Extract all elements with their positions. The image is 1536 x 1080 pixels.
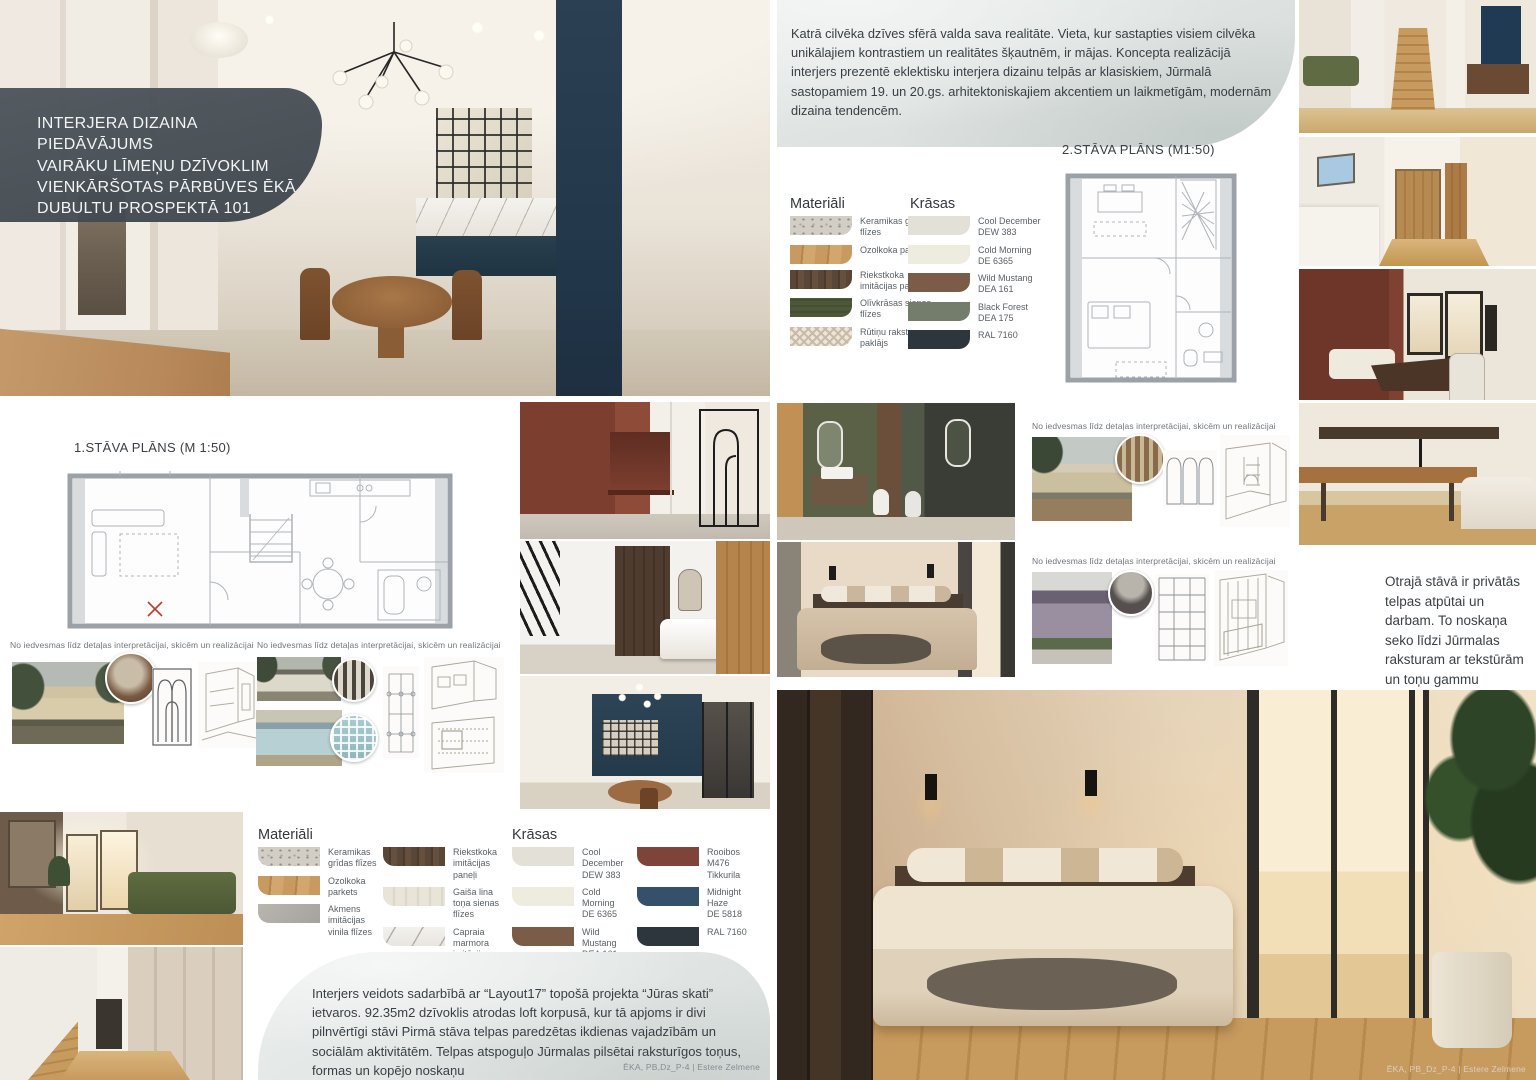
bathroom-niche-pencil-sketch [1220, 435, 1290, 527]
color-code: DE 6365 [978, 256, 1056, 267]
color-item: Cold MorningDE 6365 [908, 245, 1056, 268]
material-label: Gaiša lina toņa sienas flīzes [453, 887, 505, 921]
color-label: Black ForestDEA 175 [978, 302, 1056, 325]
color-label: RAL 7160 [978, 330, 1056, 341]
material-item: Akmens imitācijas vinila flīzes [258, 904, 380, 938]
color-label: Cold MorningDE 6365 [582, 887, 634, 921]
color-swatch [908, 216, 970, 235]
arch-study-drawing-1 [152, 668, 192, 746]
white-sofa [1461, 477, 1536, 529]
wood-floor [1299, 108, 1536, 133]
colors-legend-title-lower: Krāsas [512, 827, 557, 843]
first-floor-plan-drawing [60, 462, 460, 640]
material-swatch-ceramic-tile [790, 216, 852, 235]
outro-panel: Interjers veidots sadarbībā ar “Layout17… [258, 952, 770, 1080]
colors-legend-lower-col1: Cool DecemberDEW 383 Cold MorningDE 6365… [512, 847, 634, 966]
desk-leg [1321, 483, 1326, 521]
throw-blanket [927, 958, 1177, 1010]
hero-teal-accent-wall [556, 0, 622, 396]
radiator [1485, 305, 1497, 351]
hero-chair-right [452, 270, 482, 340]
color-item: Midnight HazeDE 5818 [637, 887, 759, 921]
small-bedroom-photo [777, 542, 1015, 677]
title-line: INTERJERA DIZAINA PIEDĀVĀJUMS [37, 113, 300, 156]
color-item: RooibosM476 Tikkurila [637, 847, 759, 881]
basin [821, 467, 853, 479]
oval-mirror-left [817, 421, 843, 469]
color-item: Black ForestDEA 175 [908, 302, 1056, 325]
fiddle-leaf-plant [1367, 690, 1536, 930]
arched-mirror [678, 569, 702, 611]
material-label: Akmens imitācijas vinila flīzes [328, 904, 380, 938]
red-hall-niche [610, 432, 670, 490]
master-bedroom-photo: ĒKA, PB_Dz_P-4 | Estere Zelmene [777, 690, 1536, 1080]
color-swatch [908, 302, 970, 321]
desk-leg [1449, 483, 1454, 521]
color-name: Wild Mustang [582, 927, 634, 950]
wardrobe-seam [670, 402, 672, 514]
wall-shelf [1319, 427, 1499, 439]
color-swatch [637, 927, 699, 946]
color-code: M476 Tikkurila [707, 858, 759, 881]
green-sofa [128, 872, 236, 914]
wall-sconce-left [829, 566, 836, 580]
material-swatch-check-carpet [790, 327, 852, 346]
inspiration-house-photo-2 [257, 657, 341, 701]
second-floor-note: Otrajā stāvā ir privātās telpas atpūtai … [1385, 572, 1535, 689]
title-line: VIENKĀRŠOTAS PĀRBŪVES ĒKĀ [37, 177, 300, 198]
dark-wardrobe [777, 690, 873, 1080]
dining-chair [640, 788, 658, 809]
color-label: Midnight HazeDE 5818 [707, 887, 759, 921]
material-item: Keramikas grīdas flīzes [258, 847, 380, 870]
inspiration-detail-circle-4 [1115, 434, 1165, 484]
color-code: DE 5818 [707, 909, 759, 920]
color-label: Cool DecemberDEW 383 [978, 216, 1056, 239]
credit-right: ĒKA, PB_Dz_P-4 | Estere Zelmene [1387, 1064, 1526, 1074]
pillows [907, 848, 1183, 882]
color-code: DEA 161 [978, 284, 1056, 295]
color-label: RooibosM476 Tikkurila [707, 847, 759, 881]
upstairs-hall-door-photo [1299, 137, 1536, 266]
material-swatch-linen-tiles [383, 887, 445, 906]
color-item: RAL 7160 [637, 927, 759, 946]
color-label: Cool DecemberDEW 383 [582, 847, 634, 881]
color-name: Midnight Haze [707, 887, 759, 910]
color-item: RAL 7160 [908, 330, 1056, 349]
color-swatch [512, 927, 574, 946]
color-code: DEW 383 [582, 870, 634, 881]
color-swatch [908, 245, 970, 264]
arched-glass-partition [696, 408, 766, 528]
wood-floor [60, 1051, 190, 1080]
color-swatch [908, 330, 970, 349]
green-bathroom-photo [777, 403, 1015, 540]
materials-legend-title-lower: Materiāli [258, 827, 313, 843]
wood-desk-chairs [1467, 64, 1529, 94]
color-swatch [637, 887, 699, 906]
color-swatch [512, 887, 574, 906]
material-label: Riekstkoka imitācijas paneļi [453, 847, 505, 881]
title-line: DUBULTU PROSPEKTĀ 101 [37, 198, 300, 219]
hero-chandelier [318, 22, 468, 122]
black-glass-doors [702, 702, 754, 798]
wall-sconce-right [927, 564, 934, 578]
desk-lamp [1419, 439, 1422, 467]
toilet [873, 489, 889, 515]
oval-mirror-right [945, 419, 971, 467]
color-name: Wild Mustang [978, 273, 1056, 284]
navy-accent-wall [1481, 6, 1521, 72]
sketch-caption: No iedvesmas līdz detaļas interpretācija… [257, 640, 501, 650]
interior-pencil-sketch-1 [198, 662, 260, 748]
material-swatch-walnut-panels [790, 270, 852, 289]
material-swatch-stone-vinyl [258, 904, 320, 923]
color-name: RAL 7160 [707, 927, 759, 938]
checkered-glass-window [602, 720, 658, 756]
window-left [1407, 293, 1443, 355]
credit-left: ĒKA, PB,Dz_P-4 | Estere Zelmene [623, 1062, 760, 1072]
color-swatch [908, 273, 970, 292]
potted-plant [48, 856, 70, 886]
title-card: INTERJERA DIZAINA PIEDĀVĀJUMS VAIRĀKU LĪ… [0, 88, 322, 222]
inspiration-building-photo-2 [1032, 572, 1112, 664]
wardrobe-pencil-sketch [1214, 570, 1288, 666]
living-room-green-sofa-photo [0, 812, 243, 945]
color-item: Cool DecemberDEW 383 [908, 216, 1056, 239]
title-line: VAIRĀKU LĪMEŅU DZĪVOKLIM [37, 156, 300, 177]
color-label: RAL 7160 [707, 927, 759, 938]
toilet-reflection [905, 491, 921, 517]
color-code: DEW 383 [978, 227, 1056, 238]
triple-arch-drawing [1163, 450, 1217, 506]
materials-legend-lower-col1: Keramikas grīdas flīzes Ozolkoka parkets… [258, 847, 380, 944]
sketch-caption: No iedvesmas līdz detaļas interpretācija… [1032, 421, 1276, 431]
color-name: Black Forest [978, 302, 1056, 313]
second-floor-plan-drawing [1058, 162, 1244, 394]
material-label: Ozolkoka parkets [328, 876, 380, 899]
terrazzo-floor [777, 517, 1015, 540]
color-name: Rooibos [707, 847, 759, 858]
second-floor-plan-label: 2.STĀVA PLĀNS (M1:50) [1062, 142, 1215, 157]
hero-round-table [332, 276, 452, 328]
color-label: Wild MustangDEA 161 [978, 273, 1056, 296]
red-entry-hall-photo [520, 402, 770, 539]
colors-legend-lower-col2: RooibosM476 Tikkurila Midnight HazeDE 58… [637, 847, 759, 952]
material-swatch-ceramic-tile [258, 847, 320, 866]
color-swatch [637, 847, 699, 866]
color-label: Cold MorningDE 6365 [978, 245, 1056, 268]
stair-parapet [1299, 207, 1379, 266]
material-swatch-marble-ceramic [383, 927, 445, 946]
color-name: Cool December [582, 847, 634, 870]
office-chair [1449, 353, 1485, 400]
hero-round-ceiling-lamp [190, 22, 248, 58]
hero-navy-cabinets [416, 236, 556, 276]
color-item: Cold MorningDE 6365 [512, 887, 634, 921]
color-item: Wild MustangDEA 161 [908, 273, 1056, 296]
study-desk-photo [1299, 403, 1536, 545]
color-item: Cool DecemberDEW 383 [512, 847, 634, 881]
pillows [821, 586, 951, 602]
red-hall-shelf [608, 490, 674, 495]
color-name: Cool December [978, 216, 1056, 227]
color-code: DEA 175 [978, 313, 1056, 324]
red-office-photo [1299, 269, 1536, 400]
stair-railing [520, 541, 560, 636]
wooden-door [1395, 169, 1441, 243]
inspiration-detail-circle-5 [1108, 570, 1154, 616]
color-name: RAL 7160 [978, 330, 1056, 341]
material-item: Ozolkoka parkets [258, 876, 380, 899]
staircase-living-photo [1299, 0, 1536, 133]
inspiration-detail-circle-2 [332, 658, 376, 702]
green-sofa [1303, 56, 1359, 86]
presentation-board: INTERJERA DIZAINA PIEDĀVĀJUMS VAIRĀKU LĪ… [0, 0, 1536, 1080]
throw-blanket [821, 634, 931, 664]
window-right [1445, 291, 1483, 359]
color-name: Cold Morning [582, 887, 634, 910]
wooden-door-side [1445, 163, 1467, 245]
niche-light-left [925, 774, 937, 800]
colors-legend-title-upper: Krāsas [910, 196, 955, 212]
terrace-door [66, 834, 98, 912]
dark-doorway [96, 999, 122, 1049]
plant-pot [1432, 952, 1512, 1048]
hero-chair-left [300, 268, 330, 340]
material-swatch-walnut-panels [383, 847, 445, 866]
wood-floor [0, 914, 243, 945]
materials-legend-title-upper: Materiāli [790, 196, 845, 212]
niche-light-right [1085, 770, 1097, 796]
inspiration-detail-circle-1 [105, 652, 157, 704]
material-swatch-olive-tiles [790, 298, 852, 317]
color-code: DE 6365 [582, 909, 634, 920]
vanity-cabinet [811, 475, 867, 505]
wood-staircase [1391, 28, 1435, 110]
wood-desk [1299, 467, 1477, 483]
material-swatch-oak-parquet [790, 245, 852, 264]
intro-panel: Katrā cilvēka dzīves sfērā valda sava re… [777, 0, 1295, 147]
window-grid-study-drawing [383, 666, 419, 758]
small-window [1317, 153, 1355, 187]
square-grid-study-drawing [1155, 574, 1209, 662]
hallway-wardrobe-photo [0, 947, 243, 1080]
material-item: Gaiša lina toņa sienas flīzes [383, 887, 505, 921]
oak-door [716, 541, 770, 674]
sputnik-chandelier [616, 682, 668, 708]
first-floor-plan-label: 1.STĀVA PLĀNS (M 1:50) [74, 440, 231, 455]
material-item: Riekstkoka imitācijas paneļi [383, 847, 505, 881]
intro-paragraph: Katrā cilvēka dzīves sfērā valda sava re… [791, 24, 1273, 120]
sketch-caption: No iedvesmas līdz detaļas interpretācija… [1032, 556, 1276, 566]
bathroom-photo-1 [520, 541, 770, 674]
color-swatch [512, 847, 574, 866]
material-swatch-oak-parquet [258, 876, 320, 895]
color-name: Cold Morning [978, 245, 1056, 256]
hero-marble-backsplash [416, 198, 556, 236]
kitchen-pencil-sketch [424, 657, 504, 773]
dining-nook-photo [520, 676, 770, 809]
sketch-caption: No iedvesmas līdz detaļas interpretācija… [10, 640, 254, 650]
inspiration-detail-circle-3 [330, 714, 378, 762]
colors-legend-upper: Cool DecemberDEW 383 Cold MorningDE 6365… [908, 216, 1056, 355]
wood-floor [1379, 239, 1489, 266]
material-label: Keramikas grīdas flīzes [328, 847, 380, 870]
